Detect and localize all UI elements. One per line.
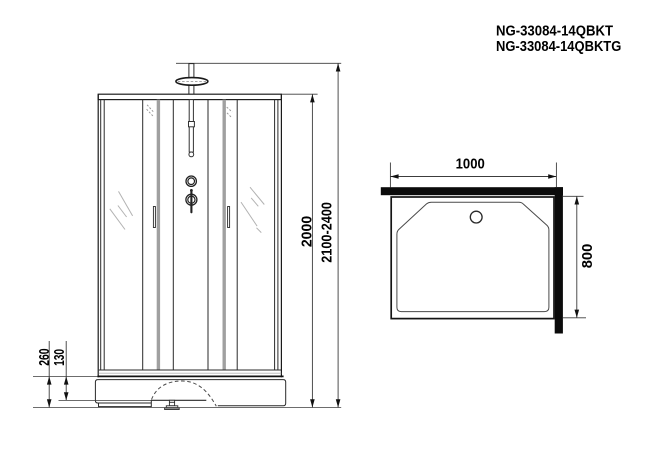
- svg-text:260: 260: [37, 348, 53, 365]
- svg-text:2100-2400: 2100-2400: [319, 202, 335, 263]
- svg-text:130: 130: [52, 349, 68, 366]
- svg-text:2000: 2000: [299, 216, 315, 247]
- svg-text:NG-33084-14QBKTG: NG-33084-14QBKTG: [496, 39, 621, 55]
- svg-text:1000: 1000: [456, 156, 485, 172]
- svg-text:800: 800: [580, 244, 596, 269]
- svg-text:NG-33084-14QBKT: NG-33084-14QBKT: [496, 24, 613, 40]
